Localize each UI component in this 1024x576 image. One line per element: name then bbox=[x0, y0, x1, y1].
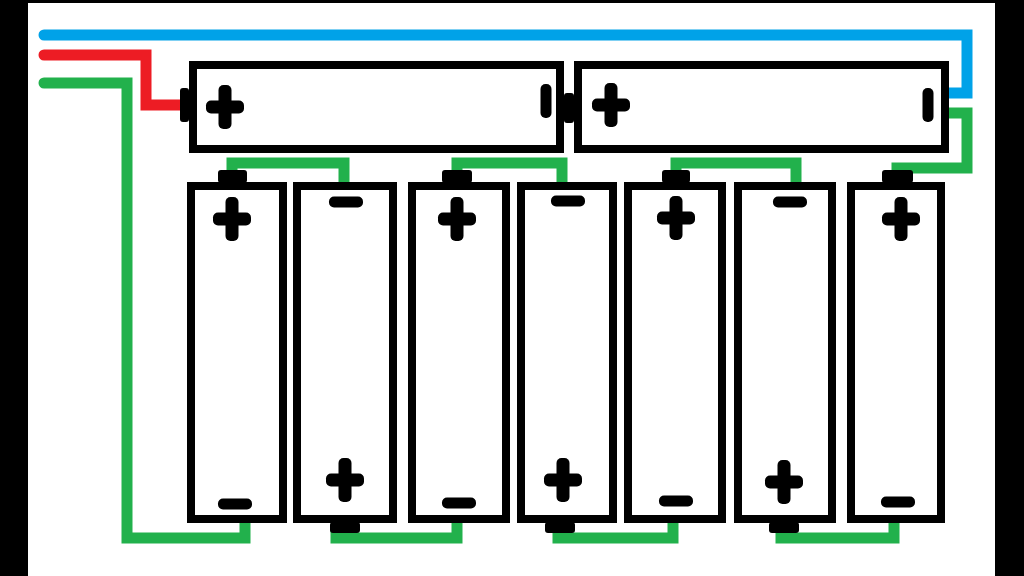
paint-canvas bbox=[0, 0, 1024, 576]
minus-terminal-icon bbox=[923, 88, 934, 122]
frame-top-bar bbox=[0, 0, 1024, 3]
minus-terminal-icon bbox=[773, 197, 807, 208]
battery-circuit-diagram bbox=[0, 0, 1024, 576]
battery-cell-4-vertical bbox=[517, 182, 617, 533]
battery-terminal-nub bbox=[769, 522, 799, 533]
battery-terminal-nub bbox=[218, 170, 247, 183]
battery-terminal-nub bbox=[662, 170, 690, 183]
battery-terminal-nub bbox=[442, 170, 472, 183]
battery-cell-2-vertical bbox=[293, 182, 397, 533]
frame-right-bar bbox=[995, 0, 1024, 576]
battery-cell-3-vertical bbox=[408, 170, 510, 523]
battery-cell-1-vertical bbox=[187, 170, 287, 523]
battery-top-right-horizontal bbox=[574, 61, 949, 153]
battery-terminal-nub bbox=[564, 93, 574, 123]
battery-body bbox=[197, 69, 556, 145]
frame-left-bar bbox=[0, 0, 28, 576]
battery-terminal-nub bbox=[545, 522, 575, 533]
minus-terminal-icon bbox=[541, 84, 552, 118]
minus-terminal-icon bbox=[442, 498, 476, 509]
battery-terminal-nub bbox=[180, 88, 189, 122]
battery-top-left-horizontal bbox=[180, 61, 574, 153]
battery-terminal-nub bbox=[330, 522, 360, 533]
minus-terminal-icon bbox=[218, 499, 252, 510]
battery-body bbox=[582, 69, 941, 145]
battery-cell-7-vertical bbox=[847, 170, 945, 523]
minus-terminal-icon bbox=[551, 196, 585, 207]
minus-terminal-icon bbox=[881, 497, 915, 508]
battery-cell-5-vertical bbox=[624, 170, 726, 523]
battery-cell-6-vertical bbox=[734, 182, 836, 533]
battery-terminal-nub bbox=[882, 170, 913, 183]
minus-terminal-icon bbox=[659, 496, 693, 507]
minus-terminal-icon bbox=[329, 197, 363, 208]
